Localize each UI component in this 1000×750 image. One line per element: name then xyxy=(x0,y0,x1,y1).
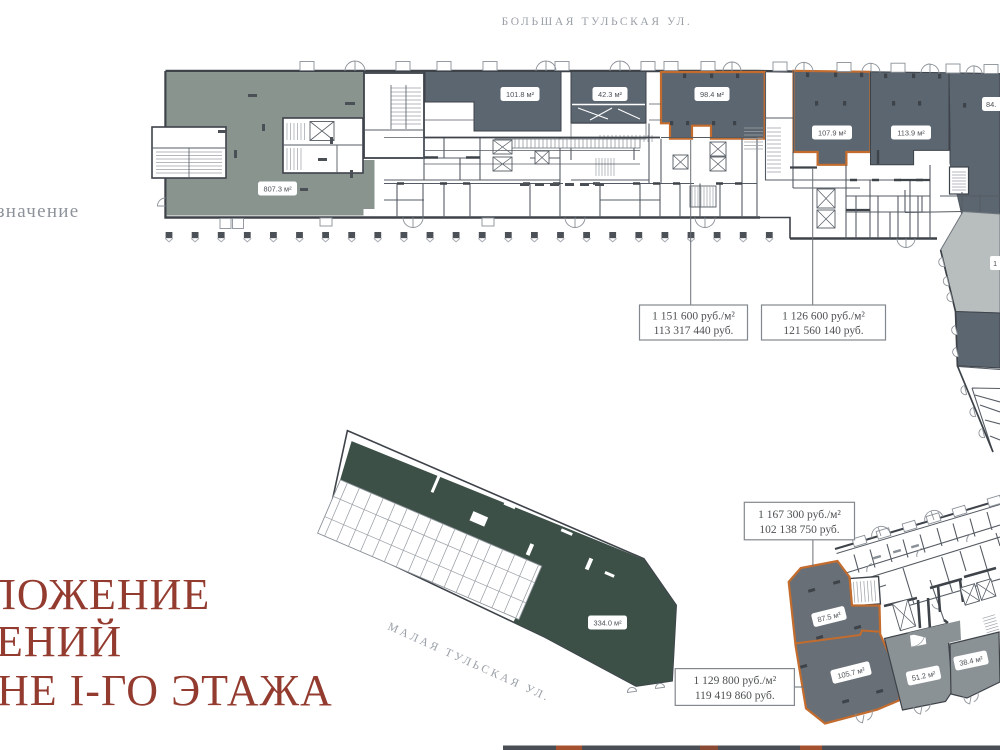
svg-text:98.4 м²: 98.4 м² xyxy=(700,90,725,99)
svg-text:1 167 300 руб./м²: 1 167 300 руб./м² xyxy=(758,509,841,521)
svg-text:1 129 800 руб./м²: 1 129 800 руб./м² xyxy=(693,675,776,687)
svg-text:1: 1 xyxy=(993,259,997,268)
svg-text:119 419 860 руб.: 119 419 860 руб. xyxy=(695,690,775,702)
svg-text:БОЛЬШАЯ ТУЛЬСКАЯ УЛ.: БОЛЬШАЯ ТУЛЬСКАЯ УЛ. xyxy=(502,16,693,28)
svg-text:121 560 140 руб.: 121 560 140 руб. xyxy=(783,325,863,337)
svg-text:1 151 600 руб./м²: 1 151 600 руб./м² xyxy=(652,311,735,323)
svg-text:101.8 м²: 101.8 м² xyxy=(506,90,535,99)
svg-text:113 317 440 руб.: 113 317 440 руб. xyxy=(654,325,734,337)
svg-text:42.3 м²: 42.3 м² xyxy=(598,90,623,99)
svg-text:113.9 м²: 113.9 м² xyxy=(897,129,925,138)
svg-text:ЛОЖЕНИЕ: ЛОЖЕНИЕ xyxy=(0,570,210,619)
svg-text:102 138 750 руб.: 102 138 750 руб. xyxy=(759,524,839,536)
svg-text:1 126 600 руб./м²: 1 126 600 руб./м² xyxy=(782,311,865,323)
svg-text:МАЛАЯ ТУЛЬСКАЯ УЛ.: МАЛАЯ ТУЛЬСКАЯ УЛ. xyxy=(386,621,552,705)
svg-text:334.0 м²: 334.0 м² xyxy=(593,619,622,628)
svg-text:НЕ I-ГО ЭТАЖА: НЕ I-ГО ЭТАЖА xyxy=(0,666,333,715)
svg-text:ЕНИЙ: ЕНИЙ xyxy=(0,617,122,666)
svg-text:807.3 м²: 807.3 м² xyxy=(263,185,292,194)
svg-text:значение: значение xyxy=(0,201,80,222)
svg-text:84.: 84. xyxy=(986,100,996,109)
svg-text:107.9 м²: 107.9 м² xyxy=(818,129,847,138)
